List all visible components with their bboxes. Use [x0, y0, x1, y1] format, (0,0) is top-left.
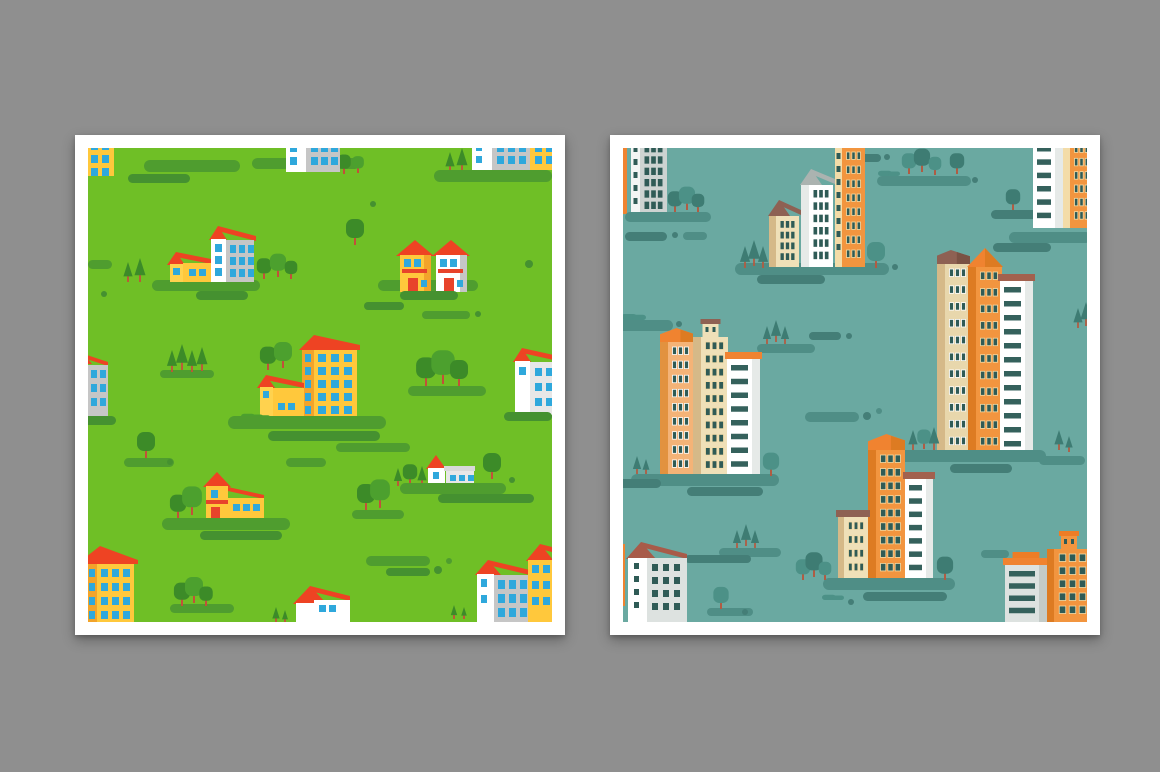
ground-dot: [167, 459, 173, 465]
ground-dot: [475, 311, 481, 317]
ground-blob: [805, 412, 859, 422]
ground-blob: [422, 311, 470, 319]
ground-dot: [101, 291, 107, 297]
ground-blob: [623, 320, 673, 331]
ground-blob: [88, 260, 112, 269]
building-tower: [725, 352, 762, 477]
ground-blob: [268, 431, 380, 441]
building-fragTR: [472, 148, 552, 170]
ground-dot: [742, 609, 748, 615]
building-tower: [768, 200, 801, 267]
ground-blob: [1009, 232, 1087, 243]
ground-blob: [162, 518, 290, 530]
pattern-tile-suburban-card: [75, 135, 565, 635]
ground-blob: [336, 443, 410, 452]
ground-blob: [993, 243, 1051, 252]
ground-blob: [438, 494, 534, 503]
ground-dot: [848, 599, 854, 605]
ground-blob: [160, 370, 214, 378]
ground-blob: [625, 232, 667, 241]
ground-blob: [228, 416, 386, 429]
ground-blob: [88, 416, 116, 425]
ground-dot: [370, 201, 376, 207]
city-pattern-illustration: [623, 148, 1087, 622]
building-tower: [631, 148, 667, 216]
building-tower: [937, 250, 970, 457]
ground-dot: [676, 321, 682, 327]
bush: [632, 315, 646, 320]
ground-blob: [950, 464, 1012, 473]
ground-blob: [757, 275, 825, 284]
ground-blob: [991, 210, 1039, 219]
ground-dot: [846, 333, 852, 339]
building-tower: [868, 434, 905, 580]
building-tower: [1063, 148, 1087, 228]
ground-blob: [144, 160, 240, 172]
ground-dot: [672, 232, 678, 238]
ground-blob: [683, 232, 707, 240]
ground-blob: [124, 458, 174, 467]
building-tower: [833, 148, 867, 267]
ground-blob: [625, 212, 711, 222]
ground-dot: [434, 566, 442, 574]
ground-blob: [687, 487, 763, 496]
ground-blob: [400, 483, 506, 494]
ground-blob: [898, 450, 1046, 462]
ground-blob: [504, 412, 552, 421]
ground-dot: [972, 177, 978, 183]
ground-blob: [863, 592, 947, 601]
suburban-pattern-illustration: [88, 148, 552, 622]
ground-dot: [525, 260, 533, 268]
ground-blob: [623, 479, 661, 488]
ground-blob: [757, 344, 815, 353]
ground-blob: [364, 302, 404, 310]
ground-dot: [509, 477, 515, 483]
ground-blob: [286, 458, 326, 467]
ground-blob: [128, 174, 190, 183]
building-tower: [903, 472, 935, 580]
ground-blob: [823, 578, 955, 590]
building-tower: [693, 319, 728, 477]
bush: [832, 596, 844, 601]
ground-blob: [352, 510, 404, 519]
ground-dot: [884, 154, 890, 160]
pattern-tile-city-card: [610, 135, 1100, 635]
building-strip: [623, 148, 627, 214]
bush: [888, 172, 900, 177]
building-tower: [1033, 148, 1063, 228]
building-strip: [623, 544, 625, 606]
building-aptBL: [88, 546, 138, 622]
ground-dot: [892, 264, 898, 270]
ground-blob: [434, 170, 552, 182]
building-tower: [998, 274, 1035, 457]
ground-blob: [386, 568, 430, 576]
building-house3: [209, 226, 256, 282]
ground-dot: [876, 408, 882, 414]
ground-blob: [170, 604, 234, 613]
ground-blob: [196, 291, 248, 300]
building-tower: [967, 248, 1003, 457]
ground-blob: [877, 176, 971, 186]
building-fragGrayTC: [286, 148, 340, 172]
building-tower: [836, 510, 870, 580]
ground-blob: [366, 556, 430, 566]
building-tower: [1003, 552, 1049, 622]
ground-blob: [400, 291, 458, 300]
ground-dot: [863, 412, 871, 420]
ground-blob: [200, 531, 282, 540]
ground-blob: [981, 550, 1009, 558]
ground-blob: [1039, 456, 1085, 465]
ground-blob: [408, 386, 486, 396]
building-fragYellowTL: [88, 148, 114, 176]
building-tower: [660, 328, 693, 477]
ground-dot: [446, 558, 452, 564]
ground-blob: [685, 555, 751, 563]
ground-blob: [809, 332, 841, 340]
